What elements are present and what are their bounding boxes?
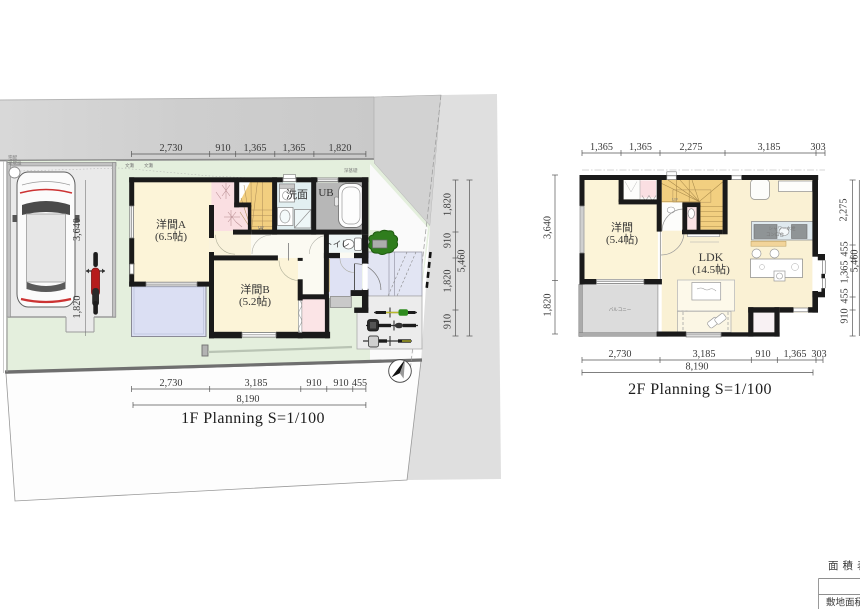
svg-text:面積表: 面積表 (828, 559, 860, 572)
svg-text:受取設: 受取設 (8, 160, 22, 167)
svg-text:3,640: 3,640 (543, 216, 554, 239)
svg-text:洋間: 洋間 (611, 220, 633, 234)
svg-text:8,190: 8,190 (686, 362, 709, 373)
svg-text:1F Planning S=1/100: 1F Planning S=1/100 (181, 410, 325, 427)
svg-text:1,820: 1,820 (329, 143, 352, 154)
svg-text:8,190: 8,190 (237, 394, 260, 405)
svg-text:3,185: 3,185 (245, 378, 268, 389)
svg-text:バルコニー: バルコニー (609, 307, 632, 312)
svg-text:2,275: 2,275 (839, 199, 850, 222)
svg-text:910: 910 (443, 233, 454, 248)
svg-text:2,730: 2,730 (609, 349, 632, 360)
svg-text:5,460: 5,460 (850, 250, 860, 273)
svg-text:敷地面積: 敷地面積 (826, 597, 860, 609)
svg-text:洋間A: 洋間A (156, 217, 186, 231)
svg-text:UP: UP (672, 197, 678, 202)
svg-text:3,185: 3,185 (758, 142, 781, 153)
svg-text:UB: UB (318, 187, 333, 199)
svg-text:(5.4帖): (5.4帖) (606, 233, 638, 246)
svg-text:文灘: 文灘 (125, 162, 134, 169)
svg-text:2F Planning S=1/100: 2F Planning S=1/100 (628, 381, 772, 398)
svg-text:5,460: 5,460 (457, 250, 468, 273)
svg-text:3,185: 3,185 (693, 349, 716, 360)
svg-text:910: 910 (755, 349, 770, 360)
svg-text:1,365: 1,365 (784, 349, 807, 360)
svg-text:910: 910 (840, 308, 851, 323)
svg-text:1,820: 1,820 (443, 270, 454, 293)
svg-text:455: 455 (840, 288, 851, 303)
svg-text:(5.2帖): (5.2帖) (239, 295, 271, 308)
svg-text:2,730: 2,730 (160, 143, 183, 154)
svg-text:(14.5帖): (14.5帖) (692, 263, 730, 276)
svg-text:910: 910 (215, 143, 230, 154)
svg-text:910: 910 (306, 378, 321, 389)
svg-text:コンロ台: コンロ台 (766, 231, 784, 238)
svg-text:910: 910 (443, 314, 454, 329)
svg-text:1,820: 1,820 (543, 294, 554, 317)
svg-text:シャワー水栓: シャワー水栓 (769, 225, 796, 232)
svg-text:1,365: 1,365 (283, 143, 306, 154)
svg-text:洋間B: 洋間B (240, 282, 269, 296)
svg-text:2,275: 2,275 (680, 142, 703, 153)
svg-text:303: 303 (811, 349, 826, 360)
svg-text:2,730: 2,730 (160, 378, 183, 389)
svg-text:深基礎: 深基礎 (344, 167, 358, 174)
svg-text:1,365: 1,365 (244, 143, 267, 154)
svg-text:1,820: 1,820 (72, 296, 83, 319)
svg-text:洗面: 洗面 (286, 188, 308, 201)
svg-text:1,820: 1,820 (443, 193, 454, 216)
svg-text:文灘: 文灘 (144, 162, 153, 169)
svg-text:LDK: LDK (699, 250, 724, 264)
svg-text:910: 910 (333, 378, 348, 389)
svg-text:3,640: 3,640 (72, 218, 83, 241)
svg-text:UP: UP (258, 225, 264, 230)
svg-text:1,365: 1,365 (629, 142, 652, 153)
svg-text:455: 455 (352, 378, 367, 389)
svg-text:(6.5帖): (6.5帖) (155, 230, 187, 243)
svg-text:1,365: 1,365 (590, 142, 613, 153)
svg-text:303: 303 (810, 142, 825, 153)
